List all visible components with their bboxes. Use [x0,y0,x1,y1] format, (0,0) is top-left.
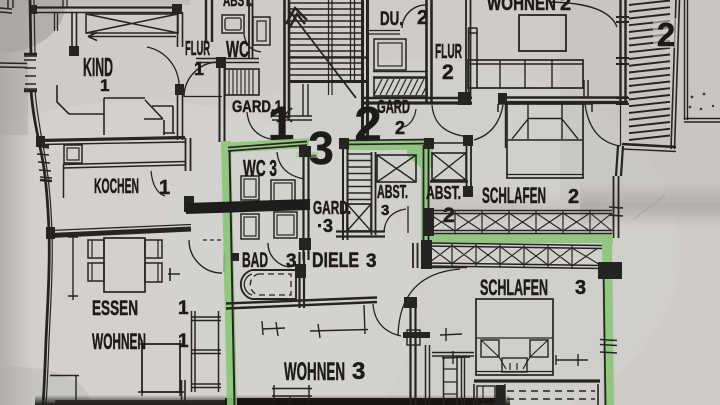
svg-text:2: 2 [568,186,579,208]
svg-text:DU.: DU. [380,9,403,30]
svg-text:1: 1 [159,177,170,199]
svg-text:DIELE: DIELE [312,249,359,272]
svg-text:3: 3 [381,202,389,219]
svg-text:ABST.: ABST. [426,183,461,203]
svg-text:WOHNEN: WOHNEN [92,329,146,354]
svg-text:FLUR: FLUR [435,41,462,63]
svg-text:3: 3 [352,358,365,385]
svg-text:GARD.: GARD. [313,198,351,218]
svg-text:KOCHEN: KOCHEN [94,175,139,198]
svg-text:3: 3 [575,277,586,299]
svg-text:FLUR: FLUR [185,38,210,60]
svg-text:2: 2 [417,7,428,29]
svg-text:2: 2 [560,0,571,15]
svg-text:SCHLAFEN: SCHLAFEN [482,183,546,208]
svg-text:1: 1 [194,59,204,79]
svg-text:1: 1 [178,331,189,352]
svg-text:WC: WC [226,36,249,62]
svg-text:3: 3 [366,251,377,272]
svg-text:ABST.: ABST. [377,182,408,202]
svg-text:2: 2 [442,61,454,84]
svg-text:SCHLAFEN: SCHLAFEN [480,275,548,300]
svg-text:WOHNEN: WOHNEN [284,358,345,386]
svg-text:1: 1 [100,76,109,95]
svg-text:2: 2 [395,118,405,138]
svg-text:WC 3: WC 3 [243,155,277,181]
svg-text:GARD: GARD [377,97,410,117]
svg-text:ABST.: ABST. [223,0,252,10]
svg-text:BAD: BAD [242,249,268,272]
svg-text:WOHNEN: WOHNEN [487,0,556,15]
svg-text:2: 2 [657,16,675,53]
svg-text:3: 3 [286,251,297,272]
svg-text:1: 1 [178,298,189,319]
svg-text:ESSEN: ESSEN [92,297,138,320]
svg-text:3: 3 [308,122,334,174]
svg-text:·3: ·3 [317,216,333,236]
